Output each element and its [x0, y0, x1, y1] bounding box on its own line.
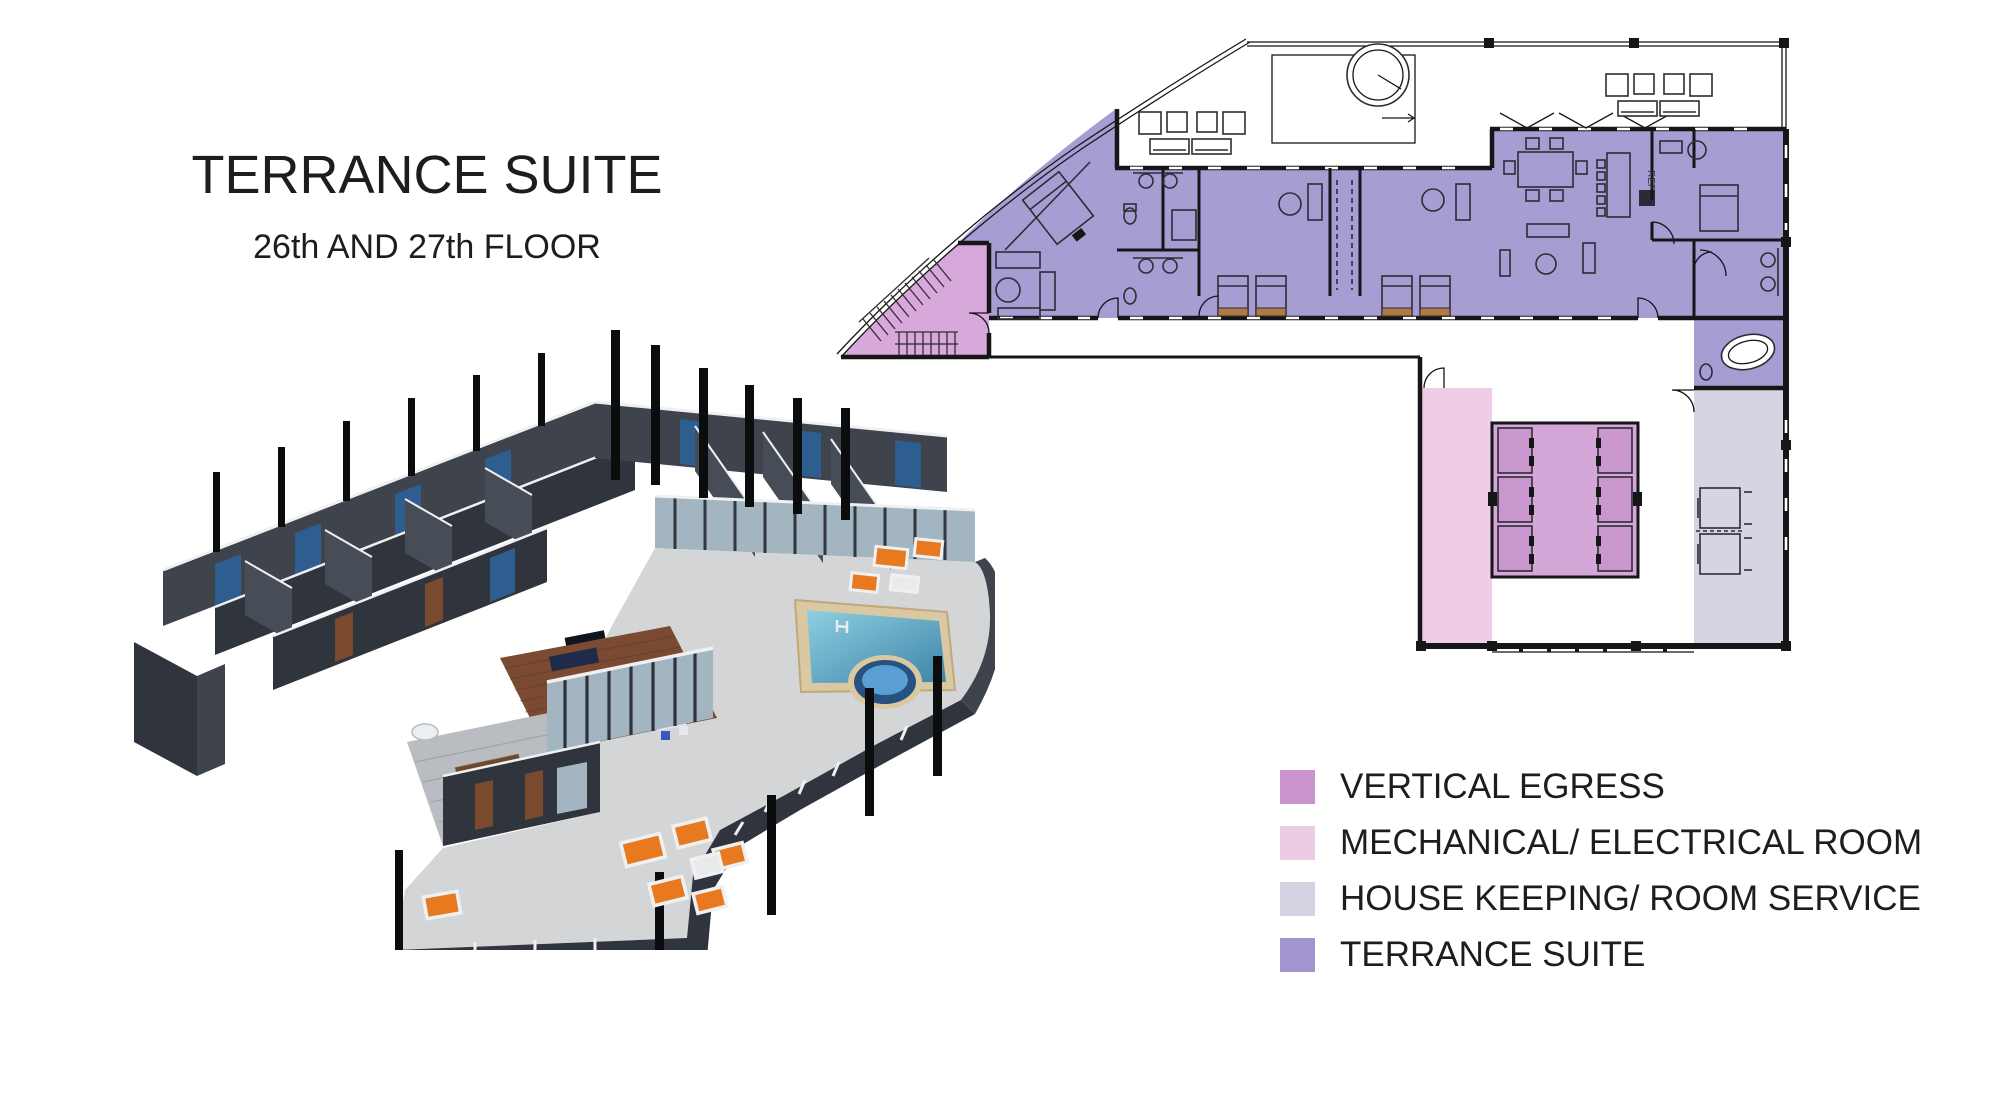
- legend: VERTICAL EGRESS MECHANICAL/ ELECTRICAL R…: [1280, 770, 1922, 994]
- legend-swatch-terrance-suite: [1280, 938, 1315, 972]
- legend-label: VERTICAL EGRESS: [1340, 767, 1665, 807]
- page: TERRANCE SUITE 26th AND 27th FLOOR: [0, 0, 2000, 1100]
- pool: [1272, 44, 1415, 143]
- ref-label: REF: [1645, 170, 1656, 190]
- page-title: TERRANCE SUITE: [187, 148, 667, 202]
- floor-plan-3d: [95, 290, 995, 950]
- suite-region: [958, 109, 1786, 388]
- legend-swatch-mechanical: [1280, 826, 1315, 860]
- legend-swatch-housekeeping: [1280, 882, 1315, 916]
- legend-label: HOUSE KEEPING/ ROOM SERVICE: [1340, 879, 1921, 919]
- legend-label: TERRANCE SUITE: [1340, 935, 1645, 975]
- legend-item-mechanical: MECHANICAL/ ELECTRICAL ROOM: [1280, 826, 1922, 860]
- legend-item-vertical-egress: VERTICAL EGRESS: [1280, 770, 1922, 804]
- legend-item-terrance-suite: TERRANCE SUITE: [1280, 938, 1922, 972]
- terrace-left: [1139, 112, 1245, 154]
- title-block: TERRANCE SUITE 26th AND 27th FLOOR: [187, 148, 667, 267]
- legend-item-housekeeping: HOUSE KEEPING/ ROOM SERVICE: [1280, 882, 1922, 916]
- legend-swatch-vertical-egress: [1280, 770, 1315, 804]
- legend-label: MECHANICAL/ ELECTRICAL ROOM: [1340, 823, 1922, 863]
- mechanical-room-region: [1422, 388, 1492, 646]
- terrace-right: [1606, 74, 1712, 116]
- page-subtitle: 26th AND 27th FLOOR: [187, 228, 667, 267]
